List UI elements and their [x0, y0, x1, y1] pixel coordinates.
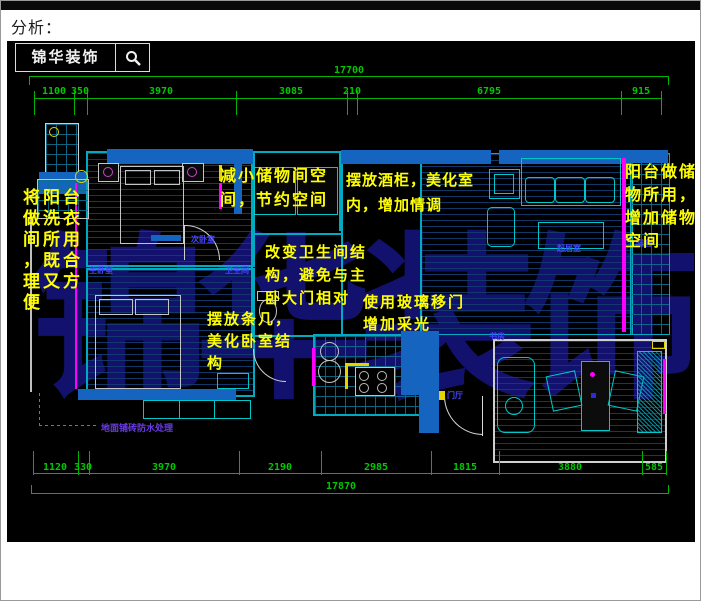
dim-value: 3970	[149, 86, 173, 97]
page-title: 分析：	[11, 14, 62, 38]
burner	[377, 371, 387, 381]
dim-value: 17700	[334, 65, 364, 76]
wall-fill	[419, 395, 439, 433]
annotation-line: 卧大门相对	[265, 287, 367, 310]
annotation-line: 物所用，	[625, 184, 697, 207]
annotation-line: 构，避免与主	[265, 264, 367, 287]
leader-line	[39, 393, 40, 426]
desk-lamp	[590, 372, 595, 377]
annotation-line: 内，增加情调	[346, 193, 474, 218]
door-leaf	[482, 396, 483, 436]
annotation-line: 摆放酒柜，美化室	[346, 168, 474, 193]
annotation-line: 做洗衣	[23, 208, 83, 229]
dim-value: 2985	[364, 462, 388, 473]
dim-tick	[239, 451, 240, 475]
wall-fill	[78, 389, 236, 400]
dim-value: 330	[74, 462, 92, 473]
dim-tick	[668, 76, 669, 85]
sink-bowl	[320, 342, 339, 361]
annotation-line: 理又方	[23, 271, 83, 292]
lamp-icon	[187, 167, 197, 177]
annotation-line: 改变卫生间结	[265, 241, 367, 264]
wall-fill	[401, 331, 439, 395]
top-black-bar	[1, 1, 700, 10]
annotation-line: 将阳台	[23, 187, 83, 208]
console-cell	[180, 401, 216, 418]
annotation-line: 构	[207, 353, 292, 375]
fitting-circle	[75, 170, 88, 183]
annotation-glass-door: 使用玻璃移门 增加采光	[363, 292, 465, 336]
pillow	[125, 170, 151, 185]
armchair	[487, 207, 515, 247]
dim-value: 585	[645, 462, 663, 473]
pillow	[99, 299, 133, 315]
pillow	[135, 299, 169, 315]
window-line	[663, 359, 666, 414]
dim-value: 1815	[453, 462, 477, 473]
page: 分析： 锦华装饰 锦华装饰 17700 1100 350 3970 3085 2…	[0, 0, 701, 601]
annotation-line: 使用玻璃移门	[363, 292, 465, 314]
dim-tick	[321, 451, 322, 475]
dim-value: 210	[343, 86, 361, 97]
room-label-bedroom-secondary: 次卧室	[191, 234, 215, 245]
annotation-line: 增加储物	[625, 207, 697, 230]
counter-edge	[345, 363, 348, 389]
annotation-line: 美化卧室结	[207, 331, 292, 353]
dim-tick	[431, 451, 432, 475]
burner	[377, 383, 387, 393]
annotation-balcony-storage: 阳台做储 物所用， 增加储物 空间	[625, 161, 697, 253]
dim-tick	[661, 91, 662, 115]
dim-line-bottom-overall	[31, 493, 669, 494]
door-frame	[652, 341, 665, 349]
leader-line	[39, 425, 99, 426]
annotation-line: 间所用	[23, 229, 83, 250]
fitting-circle	[49, 127, 59, 137]
dim-value: 6795	[477, 86, 501, 97]
desk-item	[591, 393, 596, 398]
dim-tick	[642, 451, 643, 475]
annotation-line: 摆放条几，	[207, 309, 292, 331]
counter-edge	[345, 363, 369, 366]
sofa-cushion	[525, 177, 555, 203]
brand-logo: 锦华装饰	[15, 43, 150, 72]
dim-value: 350	[71, 86, 89, 97]
chest	[217, 373, 249, 389]
dim-value: 3880	[558, 462, 582, 473]
annotation-wine-cabinet: 摆放酒柜，美化室 内，增加情调	[346, 168, 474, 218]
dim-tick	[668, 485, 669, 494]
wall-fill	[107, 149, 253, 164]
room-label-bedroom-master: 主卧室	[89, 265, 113, 276]
leader-note: 地面铺砖防水处理	[101, 421, 173, 434]
wardrobe-console	[143, 400, 251, 419]
annotation-line: ，既合	[23, 250, 83, 271]
brand-logo-text: 锦华装饰	[16, 44, 115, 71]
wardrobe	[637, 351, 662, 433]
dim-tick	[236, 91, 237, 115]
dim-value: 3970	[152, 462, 176, 473]
burner	[359, 371, 369, 381]
console-cell	[215, 401, 250, 418]
dim-value: 17870	[326, 481, 356, 492]
dim-value: 1100	[42, 86, 66, 97]
side-table-top	[494, 174, 514, 194]
annotation-line: 增加采光	[363, 314, 465, 336]
lounge-cushion	[505, 397, 523, 415]
annotation-storage-small: 减小储物间空 间，节约空间	[220, 165, 328, 213]
wall-fill	[341, 150, 491, 164]
dim-tick	[31, 485, 32, 494]
dim-line-bottom-segments	[33, 473, 666, 474]
annotation-line: 阳台做储	[625, 161, 697, 184]
dim-tick	[34, 91, 35, 115]
annotation-laundry: 将阳台 做洗衣 间所用 ，既合 理又方 便	[23, 187, 83, 313]
door-frame	[439, 391, 445, 400]
burner	[359, 383, 369, 393]
dim-tick	[621, 91, 622, 115]
annotation-line: 间，节约空间	[220, 189, 328, 213]
room-label-study: 书房	[489, 331, 505, 342]
annotation-bathroom: 改变卫生间结 构，避免与主 卧大门相对	[265, 241, 367, 310]
sofa-cushion	[555, 177, 585, 203]
dim-line-top-segments	[34, 98, 662, 99]
room-label-bathroom: 卫生间	[225, 265, 249, 276]
dim-line-top-overall	[29, 76, 669, 77]
lounge-chair	[497, 357, 535, 433]
door-leaf	[184, 225, 185, 260]
sofa-cushion	[585, 177, 615, 203]
dim-value: 3085	[279, 86, 303, 97]
annotation-console-table: 摆放条几， 美化卧室结 构	[207, 309, 292, 375]
dim-tick	[33, 451, 34, 475]
dim-value: 915	[632, 86, 650, 97]
annotation-line: 空间	[625, 230, 697, 253]
sink-bowl	[318, 360, 341, 383]
pillow	[154, 170, 180, 185]
dim-tick	[499, 451, 500, 475]
room-label-living: 起居室	[557, 243, 581, 254]
magnifier-icon	[115, 44, 149, 71]
console-cell	[144, 401, 180, 418]
room-label-entry: 门厅	[447, 390, 463, 401]
annotation-line: 便	[23, 292, 83, 313]
dim-value: 2190	[268, 462, 292, 473]
dim-tick	[666, 451, 667, 475]
lamp-icon	[103, 167, 113, 177]
dim-tick	[29, 76, 30, 85]
dim-value: 1120	[43, 462, 67, 473]
annotation-line: 减小储物间空	[220, 165, 328, 189]
door-line	[312, 348, 315, 386]
